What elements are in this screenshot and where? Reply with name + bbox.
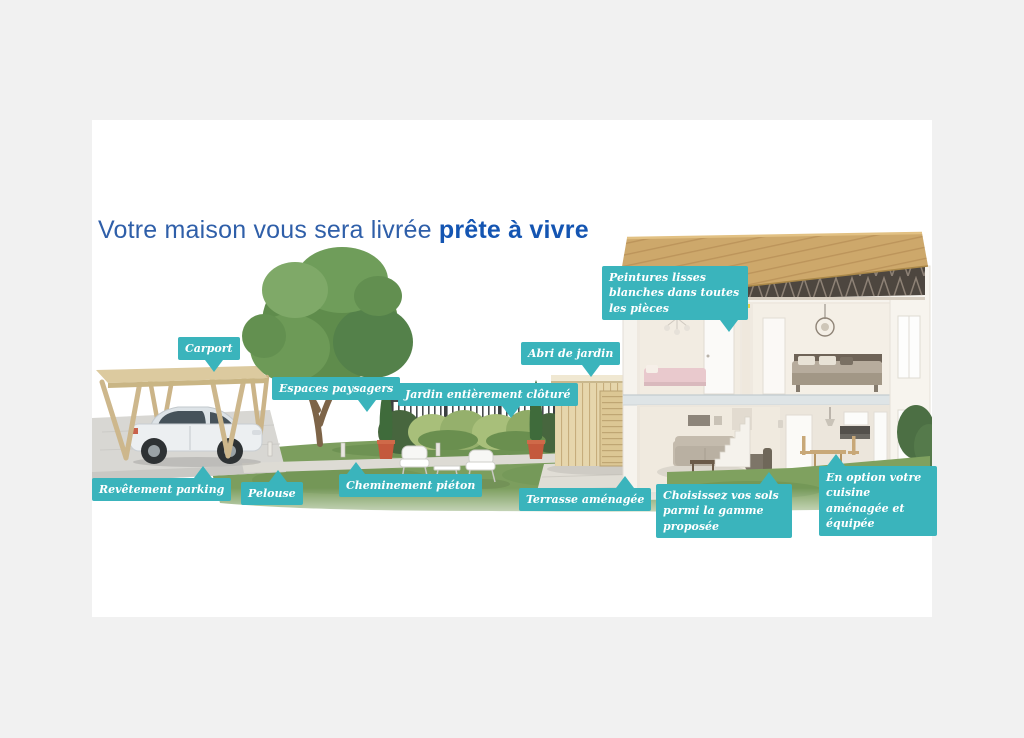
callout-carport-label: Carport xyxy=(185,342,233,355)
title-bold: prête à vivre xyxy=(439,216,589,244)
callout-abri-de-jardin-label: Abri de jardin xyxy=(528,347,613,360)
callout-espaces-paysagers-label: Espaces paysagers xyxy=(279,382,393,395)
callout-peintures: Peintures lisses blanches dans toutes le… xyxy=(602,266,748,320)
callout-jardin-cloture: Jardin entièrement clôturé xyxy=(398,383,578,406)
kitchen xyxy=(840,412,870,439)
callout-revetement-parking: Revêtement parking xyxy=(92,478,231,501)
callout-cheminement-pieton-label: Cheminement piéton xyxy=(346,479,475,492)
callout-cuisine-label: En option votre cuisine aménagée et équi… xyxy=(826,471,921,530)
callout-peintures-label: Peintures lisses blanches dans toutes le… xyxy=(609,271,739,315)
callout-revetement-parking-label: Revêtement parking xyxy=(99,483,224,496)
callout-terrasse-amenagee-label: Terrasse aménagée xyxy=(526,493,644,506)
title-regular: Votre maison vous sera livrée xyxy=(98,216,439,244)
callout-espaces-paysagers: Espaces paysagers xyxy=(272,377,400,400)
page-title: Votre maison vous sera livrée prête à vi… xyxy=(98,216,589,245)
callout-sols-label: Choisissez vos sols parmi la gamme propo… xyxy=(663,489,779,533)
illustration-canvas: Votre maison vous sera livrée prête à vi… xyxy=(92,120,932,617)
master-bedroom xyxy=(753,304,890,395)
callout-carport: Carport xyxy=(178,337,240,360)
callout-pelouse: Pelouse xyxy=(241,482,303,505)
callout-abri-de-jardin: Abri de jardin xyxy=(521,342,620,365)
callout-sols: Choisissez vos sols parmi la gamme propo… xyxy=(656,484,792,538)
callout-cuisine: En option votre cuisine aménagée et équi… xyxy=(819,466,937,536)
page-background: { "page": { "background_color": "#f1f1f1… xyxy=(0,0,1024,738)
callout-pelouse-label: Pelouse xyxy=(248,487,296,500)
callout-terrasse-amenagee: Terrasse aménagée xyxy=(519,488,651,511)
callout-cheminement-pieton: Cheminement piéton xyxy=(339,474,482,497)
floor-slab xyxy=(623,395,930,405)
callout-jardin-cloture-label: Jardin entièrement clôturé xyxy=(405,388,571,401)
